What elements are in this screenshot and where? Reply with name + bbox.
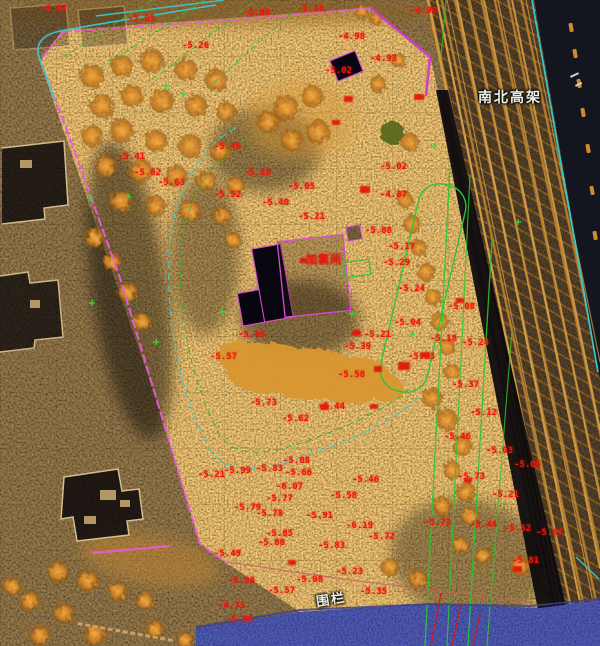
tree-canopy [224,231,242,249]
elevation-label: -5.24 [462,338,490,348]
tree-canopy [354,4,370,20]
tree-canopy [46,560,70,584]
elevation-label: -5.28 [244,168,271,178]
elevation-label: -5.08 [243,8,270,18]
roof-fragment [100,490,116,500]
elevation-label: -4.97 [40,4,67,14]
elevation-label: -5.44 [470,520,498,530]
tree-canopy [109,189,133,213]
elevation-label: -5.99 [224,466,251,476]
tree-canopy [149,88,175,114]
elevation-label: -5.02 [380,162,407,172]
elevation-label: -5.83 [256,464,283,474]
elevation-label: -5.44 [318,402,346,412]
elevation-label: -5.88 [228,576,255,586]
building-name-label: 加氯间 [306,251,342,267]
tree-canopy [29,624,51,646]
tree-canopy [408,569,428,589]
elevation-label: -5.63 [158,178,185,188]
tree-canopy [132,312,152,332]
elevation-label: -4.87 [380,190,407,200]
elevation-label: -5.21 [364,330,391,340]
elevation-label: -5.72 [368,532,395,542]
elevation-label: -6.19 [346,521,373,531]
tree-canopy [117,281,139,303]
tree-canopy [215,101,237,123]
tree-canopy [256,110,280,134]
red-survey-mark [344,96,353,102]
tree-canopy [424,288,442,306]
tree-canopy [19,590,41,612]
elevation-label: -4.98 [338,32,365,42]
elevation-label: -5.49 [214,549,241,559]
roof-fragment [120,500,130,507]
elevation-label: -5.62 [282,414,309,424]
tree-canopy [474,547,492,565]
elevation-label: -5.62 [134,168,161,178]
tree-canopy [305,119,331,145]
red-survey-mark [360,186,370,193]
elevation-label: -5.88 [258,538,285,548]
elevation-label: -5.88 [283,456,310,466]
elevation-label: -5.58 [338,370,365,380]
elevation-label: -5.67 [536,528,563,538]
elevation-label: -5.77 [266,494,293,504]
tree-canopy [451,536,469,554]
elevation-label: -5.05 [288,182,315,192]
tree-canopy [174,58,198,82]
elevation-label: -5.46 [214,142,241,152]
elevation-label: -5.73 [458,472,485,482]
red-survey-mark [352,330,361,336]
tree-canopy [369,12,383,26]
elevation-label: -5.91 [306,511,333,521]
tree-canopy [178,199,202,223]
tree-canopy [380,557,400,577]
elevation-label: -5.46 [352,475,379,485]
elevation-label: -5.46 [238,330,265,340]
elevation-label: -5.57 [268,586,295,596]
elevation-label: -5.23 [336,567,363,577]
elevation-label: -5.04 [394,318,422,328]
red-survey-mark [398,362,410,370]
tree-canopy [107,580,129,602]
red-survey-mark [332,120,340,125]
red-survey-mark [513,566,522,572]
elevation-label: -5.39 [344,342,371,352]
elevation-label: -4.90 [410,6,437,16]
elevation-label: -6.07 [276,482,303,492]
tree-canopy [432,496,452,516]
elevation-label: -5.21 [492,490,519,500]
tree-canopy [110,54,134,78]
elevation-label: -5.18 [430,334,457,344]
tree-canopy [369,75,387,93]
elevation-label: -4.71 [218,601,245,611]
tree-canopy [76,569,100,593]
elevation-label: -5.24 [398,284,426,294]
red-survey-mark [288,560,296,565]
roof-fragment [30,300,40,308]
elevation-label: -5.52 [504,524,531,534]
tree-canopy [139,48,165,74]
pointcloud-map-viewport[interactable]: -4.97-5.05-5.26-5.08-5.35-4.98-4.90-5.02… [0,0,600,646]
tree-canopy [53,602,75,624]
tree-canopy [145,195,167,217]
tree-canopy [300,84,324,108]
elevation-label: -5.73 [250,398,277,408]
tree-canopy [120,84,144,108]
tree-canopy [89,93,115,119]
red-survey-mark [414,94,424,100]
elevation-label: -5.86 [226,615,253,625]
elevation-label: -5.58 [330,491,357,501]
small-magenta-square [346,225,362,241]
tree-canopy [135,591,155,611]
elevation-label: -5.29 [383,258,410,268]
tree-canopy [94,154,118,178]
tree-canopy [184,94,208,118]
tree-canopy [455,481,477,503]
roof-fragment [20,160,32,168]
tree-canopy [443,363,461,381]
tree-canopy [280,128,304,152]
elevation-label: -5.35 [360,587,387,597]
elevation-label: -5.46 [444,432,471,442]
roof-fragment [84,516,96,524]
tree-canopy [80,124,104,148]
red-survey-mark [374,366,382,372]
elevation-label: -5.52 [214,190,241,200]
elevation-label: -5.02 [325,66,352,76]
elevation-label: -5.08 [365,226,392,236]
elevation-label: -5.21 [198,470,225,480]
tree-canopy [177,133,203,159]
tree-canopy [2,576,22,596]
tree-canopy [109,118,135,144]
red-survey-mark [370,404,378,409]
elevation-label: -5.66 [285,468,312,478]
elevation-label: -4.93 [370,54,397,64]
elevation-label: -5.26 [182,41,209,51]
main-building-outline [277,235,351,317]
elevation-label: -5.40 [262,198,289,208]
elevation-label: -5.03 [486,446,513,456]
elevation-label: -5.41 [118,152,145,162]
elevation-label: -5.73 [424,518,451,528]
elevation-label: -5.57 [210,352,237,362]
tree-canopy [435,408,459,432]
elevation-label: -5.05 [128,14,155,24]
elevation-label: -5.12 [470,408,497,418]
elevation-label: -5.35 [297,4,324,14]
tree-canopy [204,68,228,92]
elevation-label: -5.78 [256,509,283,519]
elevation-label: -5.33 [408,352,435,362]
tree-canopy [79,63,105,89]
elevation-label: -5.05 [514,460,541,470]
tree-canopy [416,262,436,282]
dark-tree-canopy [380,121,404,145]
highway-name-label: 南北高架 [478,87,542,107]
elevation-label: -5.21 [298,212,325,222]
tree-canopy [195,170,217,192]
tree-canopy [144,129,168,153]
tree-canopy [212,206,232,226]
elevation-label: -5.81 [512,556,539,566]
elevation-label: -5.83 [318,541,345,551]
elevation-label: -5.08 [448,302,475,312]
elevation-label: -5.37 [452,380,479,390]
elevation-label: -5.98 [296,575,323,585]
elevation-label: -5.17 [388,242,415,252]
tree-canopy [421,387,443,409]
